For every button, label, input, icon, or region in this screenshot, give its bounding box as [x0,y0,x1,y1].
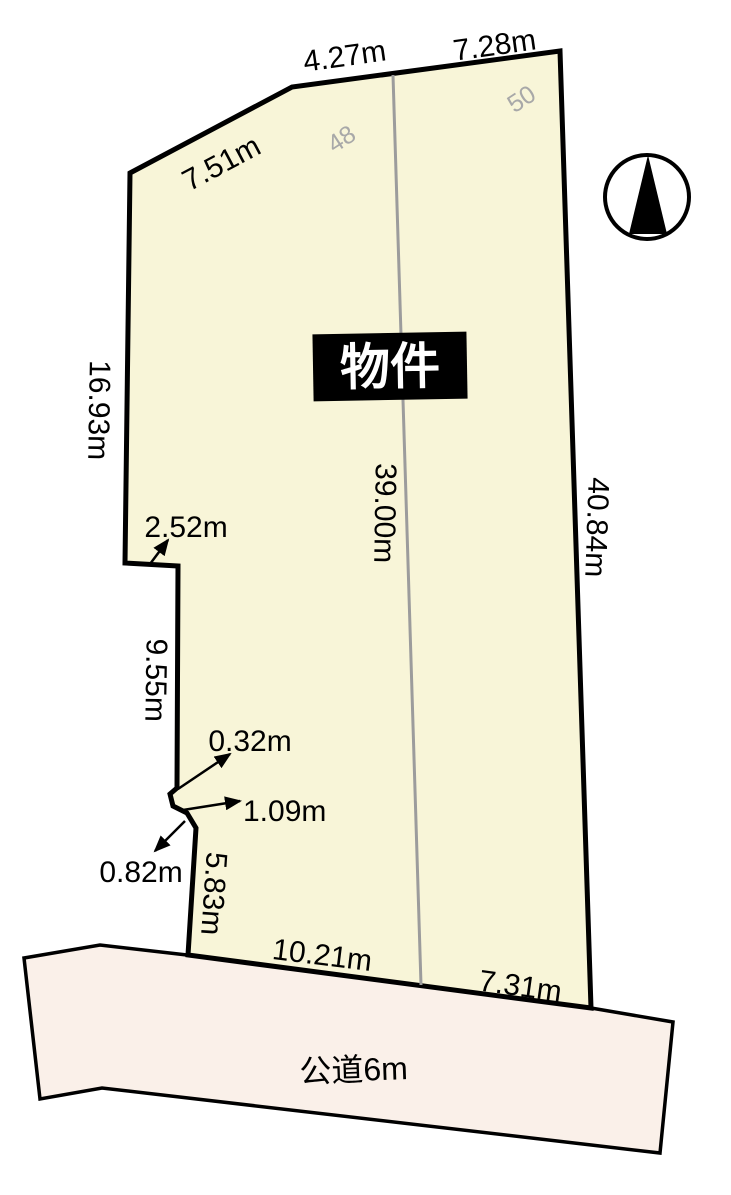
dim-left-step: 2.52m [144,511,227,544]
land-plot-diagram: 48 50 物件 7.51m 4.27m 7.28m 16.93m 9.55m … [0,0,731,1195]
dim-jog-step-c-arrow [155,821,185,851]
road-label: 公道6m [299,1050,409,1090]
dim-left-mid: 9.55m [138,638,172,722]
dim-left-upper: 16.93m [81,360,116,461]
dim-left-lower: 5.83m [194,851,233,936]
property-label-box: 物件 [312,332,467,402]
plot-diagram-canvas: 48 50 物件 7.51m 4.27m 7.28m 16.93m 9.55m … [0,0,731,1195]
dim-jog-step-b: 1.09m [243,795,326,828]
dim-center-line: 39.00m [367,463,402,564]
dim-jog-step-a: 0.32m [208,725,291,758]
north-compass-icon [605,155,689,239]
dim-jog-step-c: 0.82m [99,856,182,889]
dim-right-edge: 40.84m [578,477,614,578]
dim-top-center: 4.27m [301,34,388,78]
property-label-text: 物件 [340,338,441,396]
